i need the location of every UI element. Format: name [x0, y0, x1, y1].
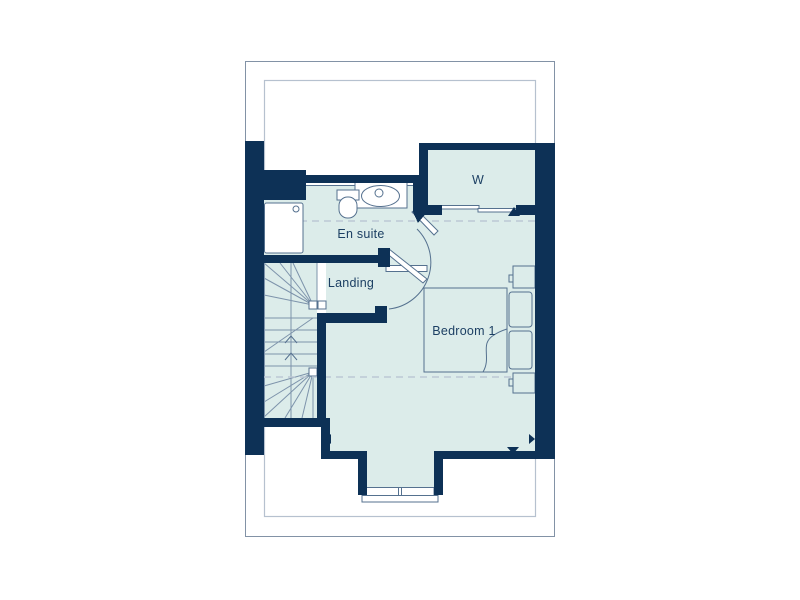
wall-dormer-left — [358, 451, 367, 495]
wall-wardrobe-stub-left — [428, 205, 442, 215]
room-label-wardrobe: W — [472, 173, 484, 187]
built-in-cupboard-bottom — [509, 373, 535, 393]
room-label-ensuite: En suite — [337, 227, 384, 241]
wall-wardrobe-top — [419, 143, 555, 150]
newel-post — [309, 301, 317, 309]
wall-right — [535, 143, 555, 459]
built-in-cupboard-top — [509, 266, 535, 288]
wall-bottom-right — [434, 451, 555, 459]
wall-ensuite-top — [306, 175, 419, 183]
wall-stairs-bottom — [263, 418, 326, 427]
room-label-landing: Landing — [328, 276, 374, 290]
newel-post — [309, 368, 317, 376]
room-label-bedroom1: Bedroom 1 — [432, 324, 495, 338]
dormer-window — [362, 488, 438, 503]
pillow — [509, 292, 532, 327]
shower-tray — [265, 203, 304, 253]
toilet — [337, 190, 359, 218]
wall-ensuite-right — [413, 175, 427, 212]
wall-stairs-right — [317, 313, 326, 426]
door-jamb-upper — [378, 248, 390, 267]
wall-bottom-left — [321, 451, 358, 459]
pillow — [509, 331, 532, 369]
floor-plan: En suite Landing W Bedroom 1 — [0, 0, 800, 600]
door-jamb-lower — [375, 306, 387, 323]
wall-ensuite-bottom — [263, 255, 380, 263]
wall-ensuite-corner — [245, 170, 306, 200]
newel-post — [318, 301, 326, 309]
wall-wardrobe-stub-right — [516, 205, 535, 215]
